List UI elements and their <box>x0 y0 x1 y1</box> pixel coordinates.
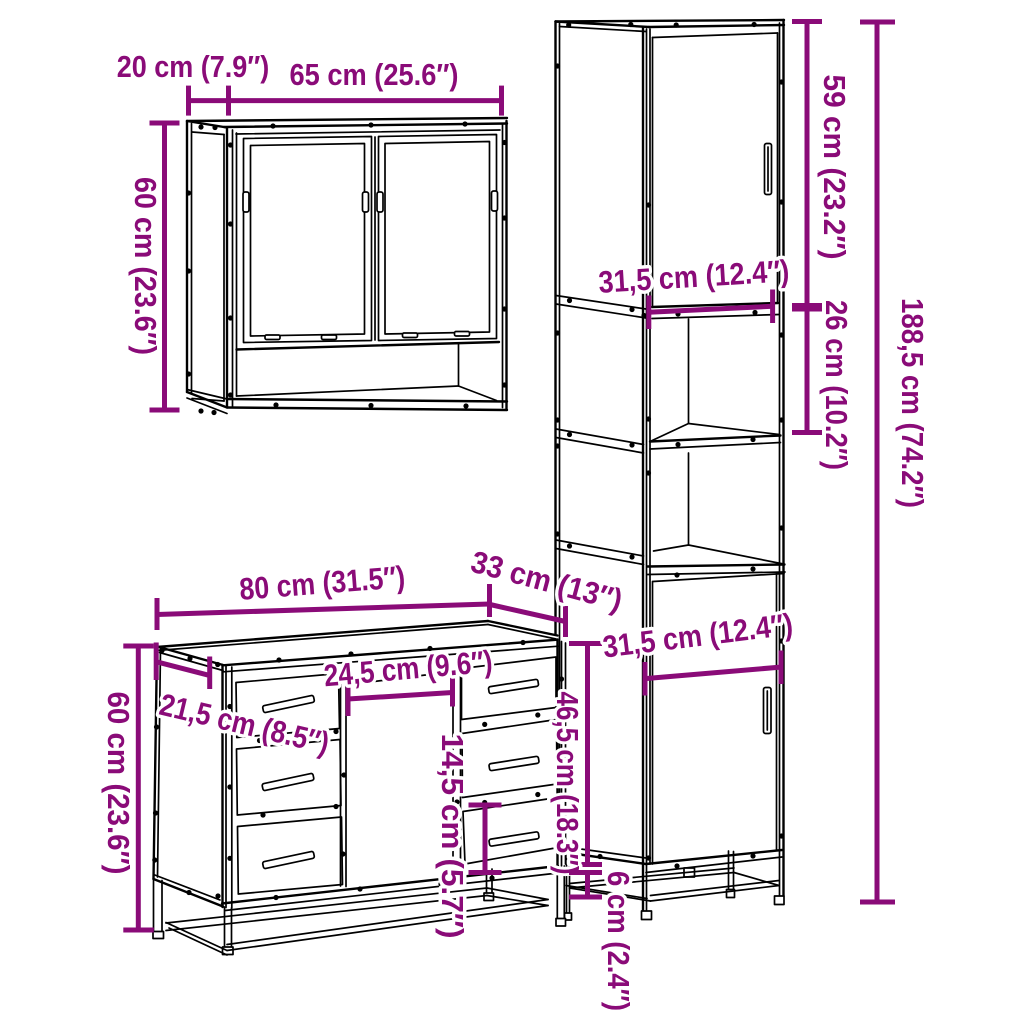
svg-text:65 cm (25.6″): 65 cm (25.6″) <box>290 57 459 92</box>
svg-text:46,5 cm (18.3″): 46,5 cm (18.3″) <box>550 692 585 875</box>
svg-text:26 cm (10.2″): 26 cm (10.2″) <box>819 300 854 470</box>
svg-text:20 cm (7.9″): 20 cm (7.9″) <box>117 49 270 84</box>
svg-text:59 cm (23.2″): 59 cm (23.2″) <box>817 75 852 260</box>
svg-text:60 cm (23.6″): 60 cm (23.6″) <box>128 177 163 355</box>
svg-text:188,5 cm (74.2″): 188,5 cm (74.2″) <box>895 298 930 508</box>
svg-text:6 cm (2.4″): 6 cm (2.4″) <box>601 871 636 1011</box>
svg-text:14,5 cm (5.7″): 14,5 cm (5.7″) <box>435 734 470 939</box>
svg-text:60 cm (23.6″): 60 cm (23.6″) <box>101 692 136 875</box>
